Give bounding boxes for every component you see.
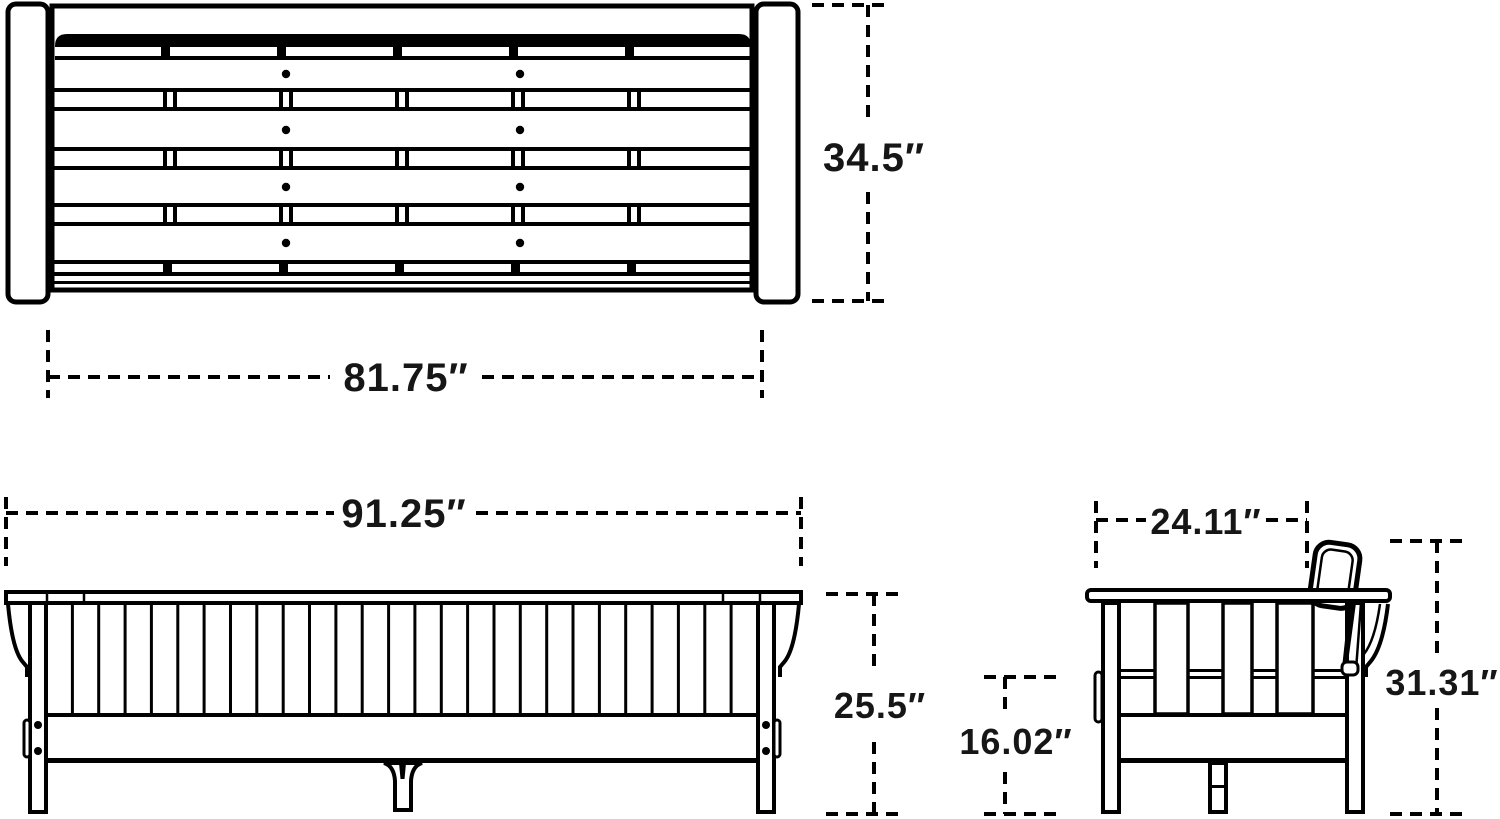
front-bolts: [34, 721, 770, 755]
furniture-dimension-diagram: 34.5″ 81.75″ 91.25″: [0, 0, 1500, 819]
dimension-top-width: 81.75″: [48, 330, 762, 400]
front-right-leg: [758, 603, 774, 812]
top-view-dowel-dots: [282, 70, 524, 78]
dimension-front-width: 91.25″: [6, 492, 801, 566]
side-apron-top-rail: [1119, 713, 1347, 717]
side-seat-cap: [1342, 662, 1358, 675]
top-view-slat-row: [54, 88, 752, 111]
top-view-right-armrest: [756, 4, 798, 302]
side-top-rail: [1087, 590, 1390, 601]
front-left-leg: [30, 603, 46, 812]
front-top-rail: [6, 592, 801, 603]
dimension-side-height: 31.31″: [1385, 541, 1498, 814]
front-back-slats: [72, 603, 731, 714]
front-left-rail-cap: [24, 720, 30, 757]
top-view-slat-row: [54, 203, 752, 226]
front-seat-rail: [46, 713, 758, 717]
top-view-cushion-band-rail: [55, 56, 751, 60]
dimension-side-depth: 24.11″: [1096, 501, 1307, 568]
dimension-front-back-height: 25.5″: [826, 594, 926, 814]
top-view-left-armrest: [8, 4, 48, 302]
side-center-leg-joint: [1212, 785, 1224, 788]
dim-label-side-depth: 24.11″: [1150, 501, 1261, 542]
front-view: 91.25″: [6, 492, 801, 812]
side-front-leg: [1103, 603, 1119, 812]
top-view-cushion-band: [55, 34, 751, 47]
top-view-bottom-rails: [54, 260, 752, 284]
front-left-arm-bracket: [8, 604, 27, 677]
side-front-rail-cap: [1095, 672, 1102, 722]
dimension-top-depth: 34.5″: [812, 5, 925, 301]
top-view-slat-row: [54, 147, 752, 170]
dim-label-seat-height: 16.02″: [959, 721, 1072, 762]
top-view-cushion-band-joints: [161, 47, 634, 56]
side-panel-slats: [1155, 603, 1313, 714]
dim-label-front-back-height: 25.5″: [834, 685, 926, 726]
top-view-dowel-dots: [282, 183, 524, 191]
dim-label-front-width: 91.25″: [341, 492, 466, 536]
side-view: 24.11″: [1087, 501, 1390, 812]
dim-label-top-depth: 34.5″: [823, 136, 925, 180]
top-view-dowel-dots: [282, 126, 524, 134]
top-view: [8, 4, 798, 302]
dim-label-top-width: 81.75″: [343, 356, 468, 400]
dim-label-side-height: 31.31″: [1385, 662, 1498, 703]
dimension-seat-height: 16.02″: [959, 677, 1072, 814]
front-right-rail-cap: [774, 720, 780, 757]
front-right-arm-bracket: [780, 604, 799, 677]
diagram-canvas: 34.5″ 81.75″ 91.25″: [0, 0, 1500, 819]
top-view-dowel-dots: [282, 239, 524, 247]
side-apron-bottom-rail: [1119, 758, 1347, 763]
